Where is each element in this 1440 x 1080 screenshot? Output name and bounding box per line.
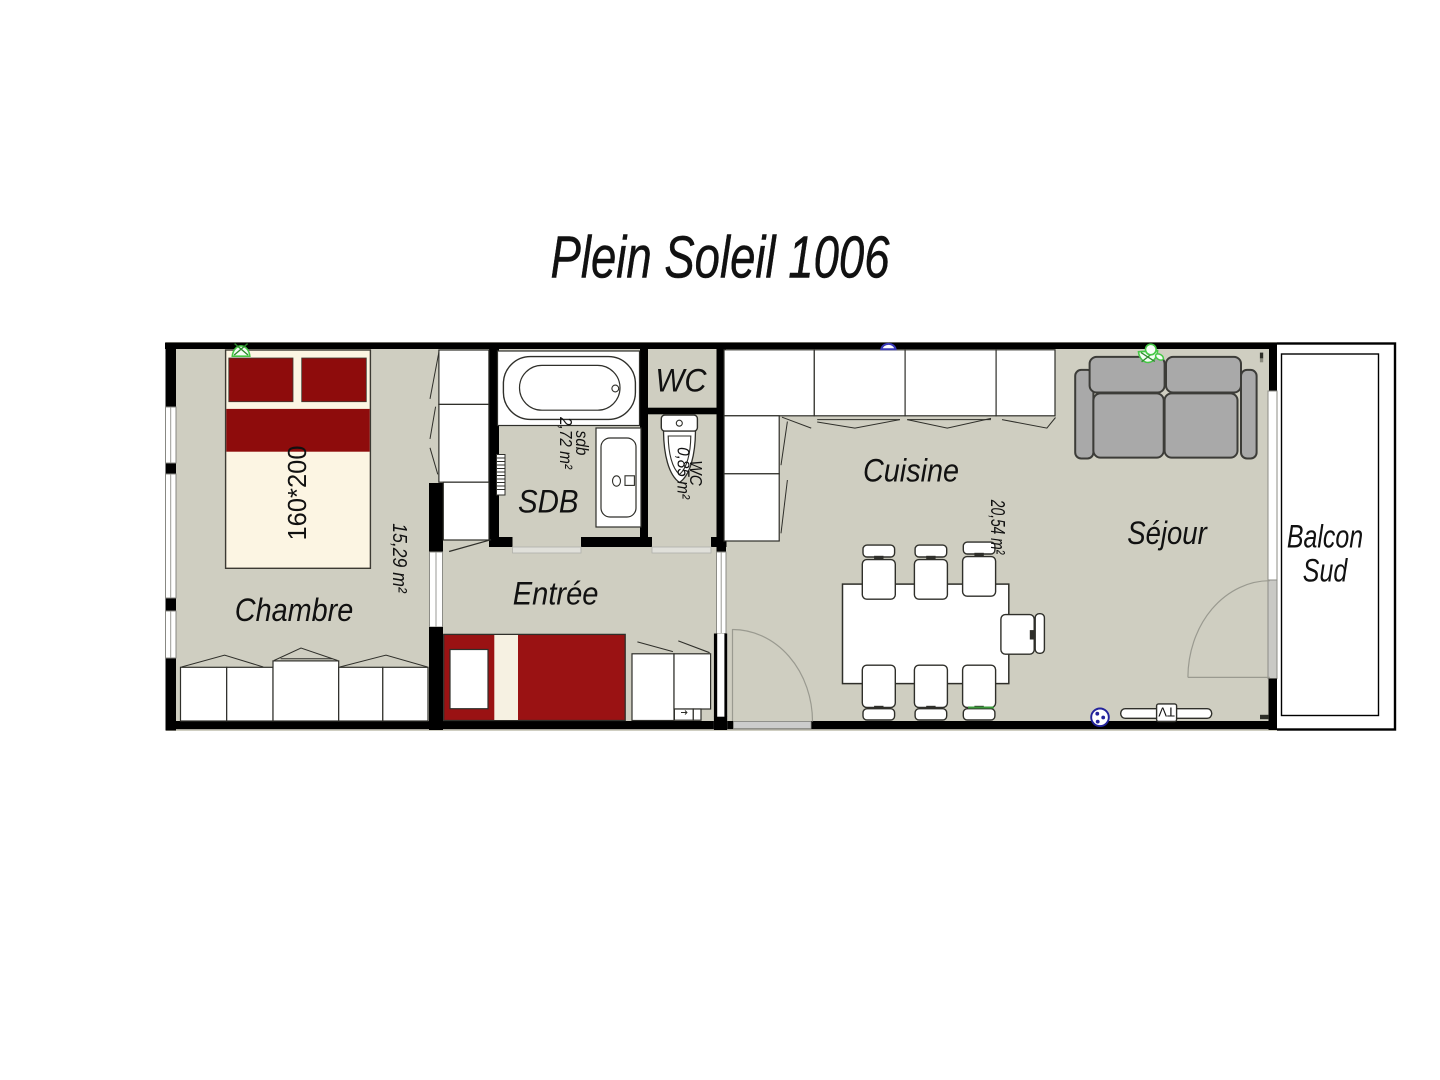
svg-text:20,54 m²: 20,54 m² (986, 499, 1009, 555)
svg-text:TV: TV (1158, 705, 1175, 720)
svg-text:Balcon: Balcon (1287, 520, 1363, 556)
svg-text:Chambre: Chambre (235, 593, 353, 629)
svg-text:0,85 m²: 0,85 m² (673, 447, 693, 500)
svg-text:Plein Soleil 1006: Plein Soleil 1006 (550, 225, 890, 291)
svg-text:15,29 m²: 15,29 m² (389, 523, 411, 593)
svg-text:Cuisine: Cuisine (863, 453, 959, 489)
svg-text:Sud: Sud (1303, 554, 1348, 590)
svg-text:WC: WC (655, 363, 707, 399)
svg-text:SDB: SDB (518, 483, 579, 519)
svg-text:Entrée: Entrée (513, 576, 599, 612)
svg-text:Séjour: Séjour (1127, 516, 1207, 551)
svg-text:2,72 m²: 2,72 m² (556, 416, 576, 470)
svg-text:160*200: 160*200 (284, 445, 312, 540)
